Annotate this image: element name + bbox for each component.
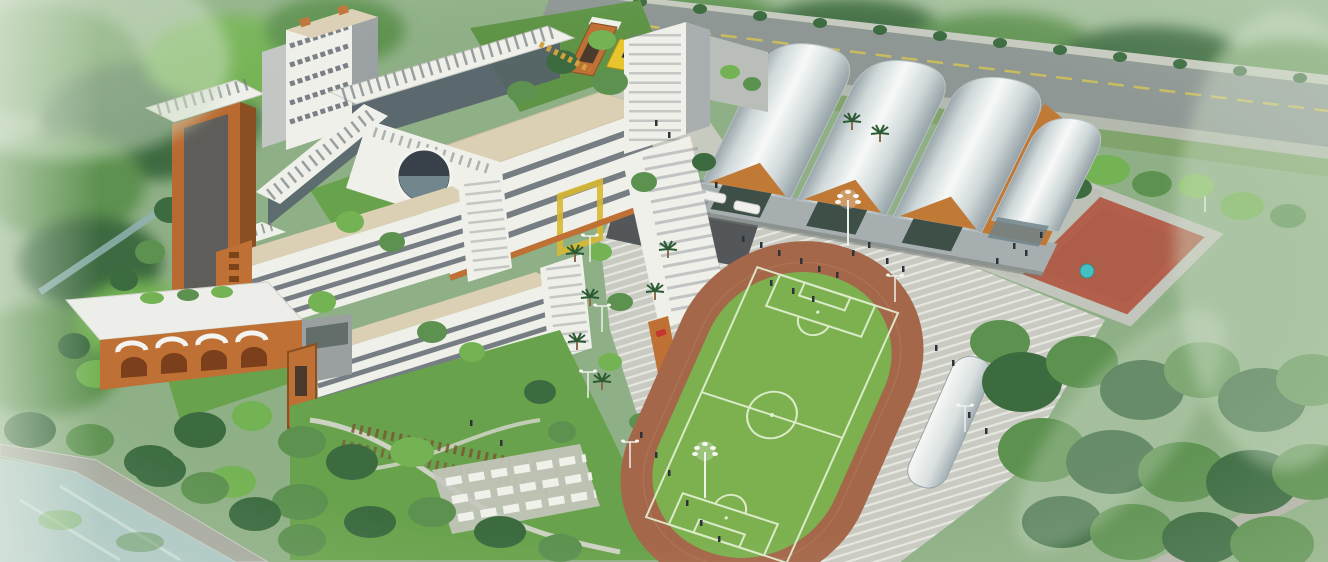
campus-aerial-rendering <box>0 0 1328 562</box>
mist-overlays <box>0 0 1328 562</box>
vignette <box>0 0 1328 562</box>
